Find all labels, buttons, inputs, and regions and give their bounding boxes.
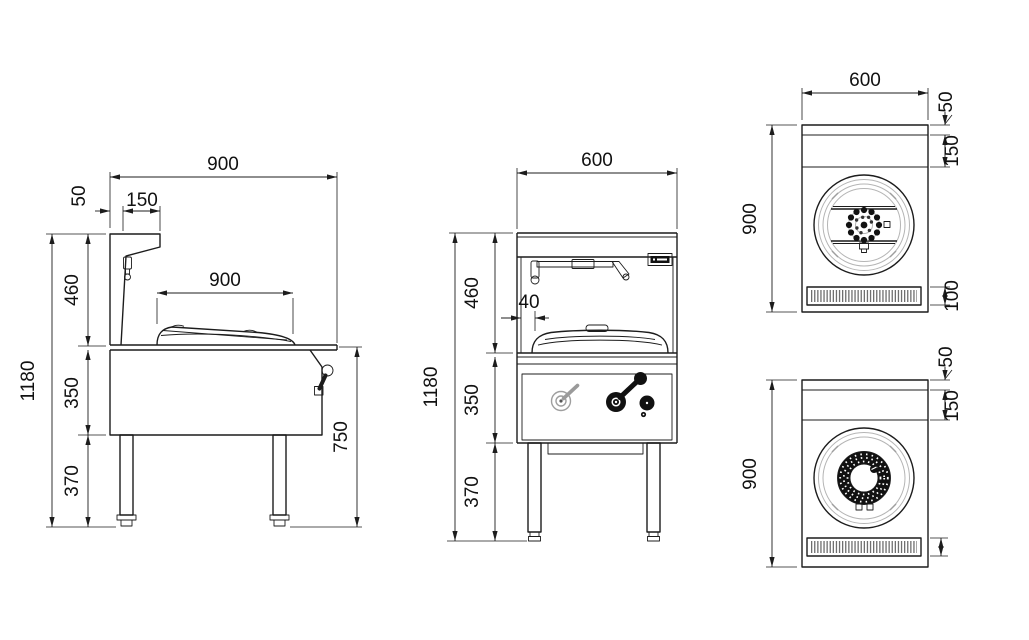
dim-front-body-height: 350 [462,384,483,416]
front-dimensions: 600 1180 460 350 370 40 [421,150,677,541]
dim-plan-a-grille-depth: 100 [942,280,963,312]
body-side [110,350,322,435]
dim-side-shelf: 150 [126,190,158,211]
dim-front-leg-height: 370 [462,476,483,508]
plan-view-jet-burner: 600 900 50 150 100 [740,70,963,312]
wok-pan-side [157,325,295,345]
dim-front-upper-height: 460 [462,277,483,309]
pilot-valve-knob-icon [552,386,578,411]
dim-side-body-height: 350 [62,377,83,409]
dim-plan-b-depth: 900 [740,458,761,490]
wok-opening-rings-b [814,428,914,528]
dim-plan-a-splash-depth: 150 [942,135,963,167]
dim-plan-a-depth: 900 [740,203,761,235]
drawing-canvas: 900 50 150 460 1180 350 370 900 [0,0,1029,640]
logo-badge [648,254,672,266]
dim-front-wok-gap: 40 [518,292,539,313]
igniter-bracket [860,243,869,253]
legs-side [117,435,289,526]
front-grille-b [807,538,921,556]
dim-front-width: 600 [581,150,613,171]
front-view: 600 1180 460 350 370 40 [421,150,677,541]
dim-front-total-height: 1180 [421,367,442,408]
burner-tray [548,443,643,454]
swing-faucet-icon [531,260,629,285]
dim-side-worktop-height: 750 [331,421,352,453]
dim-side-leg-height: 370 [62,465,83,497]
technical-drawing: 900 50 150 460 1180 350 370 900 [0,0,1029,640]
dim-plan-b-splash-depth: 150 [942,390,963,422]
backsplash-shelf [110,234,160,345]
gas-valve-lever-icon [315,365,334,395]
jet-burner-icon [846,207,890,243]
side-dimensions: 900 50 150 460 1180 350 370 900 [18,154,362,527]
dim-side-top-width: 900 [207,154,239,175]
dim-side-upper-height: 460 [62,274,83,306]
dim-side-total-height: 1180 [18,361,39,402]
plan-view-ring-burner: 900 50 150 [740,346,963,567]
worktop-side [110,345,337,350]
dim-side-splash: 50 [69,185,90,206]
side-view: 900 50 150 460 1180 350 370 900 [18,154,362,527]
dim-plan-a-back-ledge: 50 [936,91,957,112]
wok-pan-front [532,325,668,353]
front-grille-a [807,287,921,305]
dim-plan-a-width: 600 [849,70,881,91]
secondary-knob-icon [640,396,655,418]
dim-plan-b-back-ledge: 50 [936,346,957,367]
ring-burner-icon [838,452,891,511]
legs-front [528,443,660,541]
dim-side-wok-width: 900 [209,270,241,291]
